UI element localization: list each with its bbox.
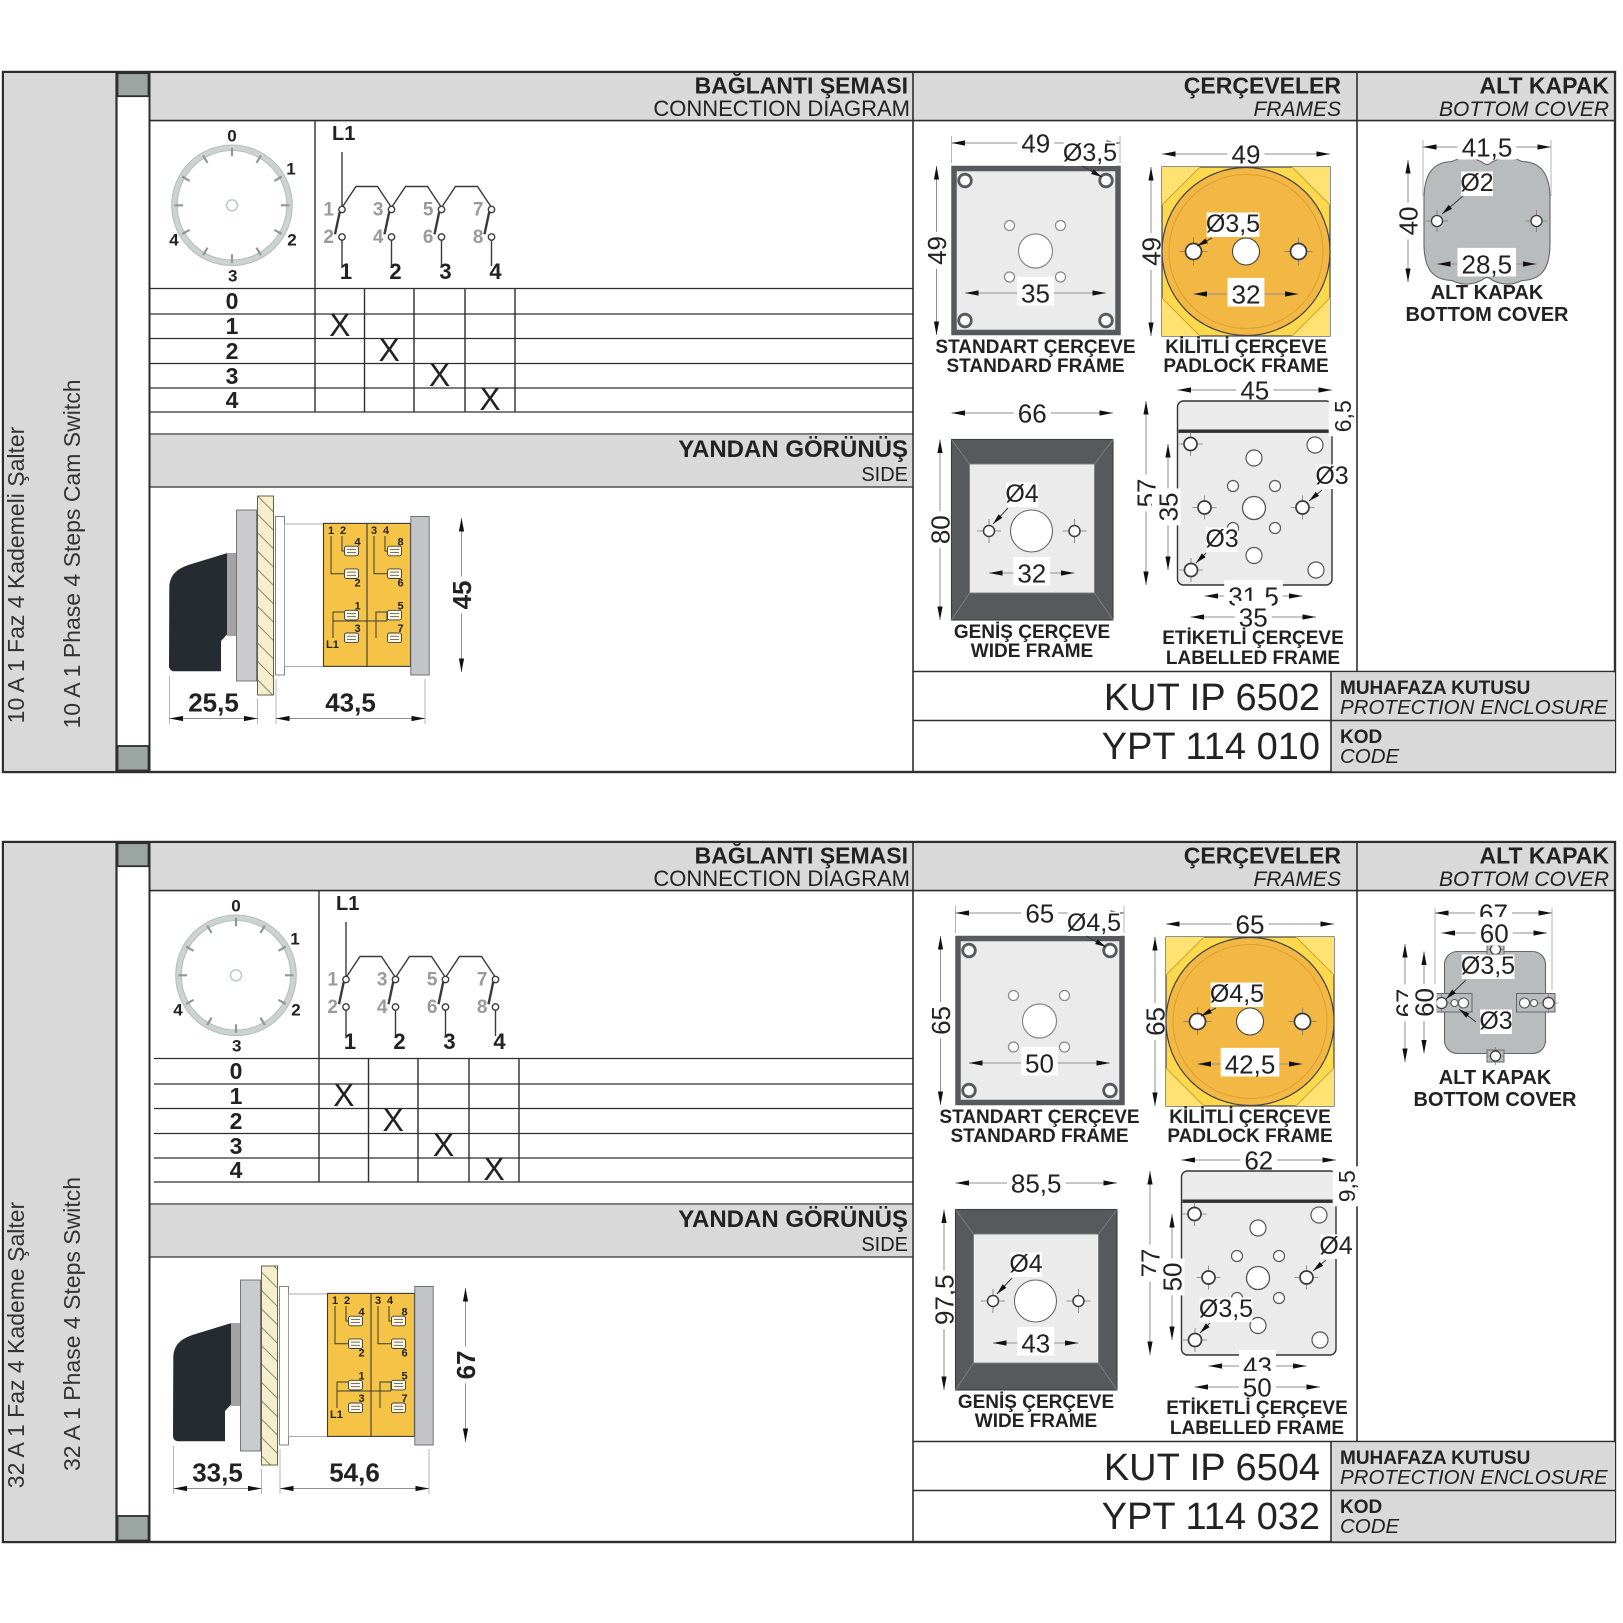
svg-text:Ø4: Ø4: [1005, 480, 1038, 508]
svg-text:3: 3: [358, 1393, 364, 1405]
svg-text:4: 4: [373, 227, 384, 248]
svg-text:6,5: 6,5: [1330, 400, 1356, 432]
svg-text:3: 3: [377, 970, 388, 991]
svg-text:8: 8: [477, 997, 488, 1018]
svg-text:2: 2: [323, 227, 334, 248]
svg-text:1: 1: [286, 159, 295, 178]
svg-text:BOTTOM COVER: BOTTOM COVER: [1406, 304, 1570, 326]
svg-text:LABELLED FRAME: LABELLED FRAME: [1170, 1418, 1344, 1439]
svg-text:KİLİTLİ ÇERÇEVE: KİLİTLİ ÇERÇEVE: [1169, 1107, 1331, 1128]
svg-text:3: 3: [230, 1133, 243, 1159]
svg-text:32 A 1 Faz 4 Kademe Şalter: 32 A 1 Faz 4 Kademe Şalter: [3, 1201, 29, 1488]
svg-text:8: 8: [473, 227, 484, 248]
svg-text:4: 4: [493, 1029, 506, 1054]
svg-text:2: 2: [327, 997, 338, 1018]
svg-text:FRAMES: FRAMES: [1253, 868, 1341, 891]
svg-text:X: X: [429, 357, 450, 393]
svg-text:L1: L1: [332, 123, 355, 145]
svg-text:X: X: [333, 1077, 354, 1113]
svg-text:BOTTOM COVER: BOTTOM COVER: [1439, 98, 1609, 121]
svg-text:X: X: [329, 307, 350, 343]
svg-text:7: 7: [477, 970, 488, 991]
svg-text:32: 32: [1232, 279, 1261, 309]
svg-text:YANDAN GÖRÜNÜŞ: YANDAN GÖRÜNÜŞ: [678, 1206, 908, 1233]
svg-text:5: 5: [397, 601, 403, 613]
svg-text:0: 0: [226, 288, 239, 314]
svg-text:28,5: 28,5: [1461, 249, 1512, 279]
svg-text:PADLOCK FRAME: PADLOCK FRAME: [1163, 356, 1328, 377]
svg-text:L1: L1: [326, 639, 339, 651]
svg-text:KUT IP 6504: KUT IP 6504: [1104, 1447, 1320, 1489]
svg-text:3: 3: [443, 1029, 455, 1054]
svg-text:Ø3,5: Ø3,5: [1063, 139, 1117, 167]
svg-text:3: 3: [226, 363, 239, 389]
svg-text:2: 2: [230, 1108, 243, 1134]
svg-text:1: 1: [354, 601, 360, 613]
svg-text:Ø4,5: Ø4,5: [1210, 980, 1264, 1008]
svg-text:1: 1: [290, 929, 299, 948]
svg-text:CODE: CODE: [1340, 1515, 1400, 1538]
svg-text:KUT IP 6502: KUT IP 6502: [1104, 677, 1320, 719]
svg-text:1: 1: [327, 970, 338, 991]
svg-text:9,5: 9,5: [1334, 1170, 1360, 1202]
svg-text:4: 4: [383, 525, 390, 537]
svg-text:43,5: 43,5: [325, 688, 376, 718]
svg-text:85,5: 85,5: [1011, 1168, 1062, 1198]
svg-text:GENİŞ ÇERÇEVE: GENİŞ ÇERÇEVE: [958, 1392, 1114, 1413]
svg-text:2: 2: [344, 1295, 350, 1307]
svg-text:42,5: 42,5: [1225, 1049, 1276, 1079]
svg-text:STANDART ÇERÇEVE: STANDART ÇERÇEVE: [939, 1107, 1139, 1128]
svg-text:CONNECTION DIAGRAM: CONNECTION DIAGRAM: [653, 96, 910, 121]
svg-text:Ø3: Ø3: [1479, 1007, 1512, 1035]
svg-text:1: 1: [332, 1295, 338, 1307]
svg-text:ETİKETLİ ÇERÇEVE: ETİKETLİ ÇERÇEVE: [1166, 1398, 1348, 1419]
svg-text:X: X: [379, 332, 400, 368]
svg-text:6: 6: [423, 227, 434, 248]
svg-text:6: 6: [401, 1348, 407, 1360]
svg-text:35: 35: [1153, 492, 1183, 521]
svg-text:1: 1: [230, 1083, 243, 1109]
svg-text:CONNECTION DIAGRAM: CONNECTION DIAGRAM: [653, 866, 910, 891]
svg-text:54,6: 54,6: [329, 1458, 380, 1488]
svg-text:Ø4: Ø4: [1009, 1250, 1042, 1278]
svg-text:65: 65: [926, 1006, 956, 1035]
svg-text:ALT KAPAK: ALT KAPAK: [1480, 73, 1610, 99]
svg-text:4: 4: [489, 259, 502, 284]
svg-text:YANDAN GÖRÜNÜŞ: YANDAN GÖRÜNÜŞ: [678, 436, 908, 463]
svg-text:2: 2: [226, 338, 239, 364]
svg-text:PROTECTION ENCLOSURE: PROTECTION ENCLOSURE: [1340, 696, 1608, 719]
svg-text:6: 6: [427, 997, 438, 1018]
svg-text:2: 2: [358, 1348, 364, 1360]
svg-text:SIDE: SIDE: [861, 464, 908, 486]
svg-text:Ø3: Ø3: [1315, 462, 1348, 490]
svg-text:Ø2: Ø2: [1460, 169, 1493, 197]
svg-text:1: 1: [358, 1371, 364, 1383]
svg-text:BAĞLANTI ŞEMASI: BAĞLANTI ŞEMASI: [695, 842, 908, 869]
svg-text:1: 1: [344, 1029, 356, 1054]
svg-text:45: 45: [447, 580, 477, 609]
svg-text:X: X: [479, 381, 500, 417]
svg-text:2: 2: [340, 525, 346, 537]
svg-text:X: X: [483, 1151, 504, 1187]
svg-text:SIDE: SIDE: [861, 1234, 908, 1256]
svg-text:1: 1: [323, 200, 334, 221]
svg-text:65: 65: [1236, 909, 1265, 939]
svg-text:5: 5: [401, 1371, 407, 1383]
svg-text:10 A 1 Faz 4 Kademeli Şalter: 10 A 1 Faz 4 Kademeli Şalter: [3, 426, 29, 723]
svg-text:YPT 114 010: YPT 114 010: [1102, 726, 1320, 768]
svg-text:67: 67: [451, 1350, 481, 1379]
svg-text:43: 43: [1021, 1328, 1050, 1358]
svg-text:10 A 1 Phase 4 Steps Cam Switc: 10 A 1 Phase 4 Steps Cam Switch: [59, 379, 85, 728]
svg-text:ÇERÇEVELER: ÇERÇEVELER: [1184, 73, 1342, 99]
svg-text:X: X: [383, 1102, 404, 1138]
svg-text:0: 0: [231, 896, 240, 915]
svg-text:1: 1: [340, 259, 352, 284]
svg-text:4: 4: [230, 1157, 243, 1183]
svg-text:4: 4: [169, 230, 179, 249]
svg-text:Ø4: Ø4: [1319, 1232, 1352, 1260]
svg-text:WIDE FRAME: WIDE FRAME: [975, 1411, 1097, 1432]
svg-text:ALT KAPAK: ALT KAPAK: [1480, 843, 1610, 869]
svg-text:PROTECTION ENCLOSURE: PROTECTION ENCLOSURE: [1340, 1466, 1608, 1489]
svg-text:L1: L1: [336, 893, 359, 915]
svg-text:Ø3,5: Ø3,5: [1199, 1295, 1253, 1323]
svg-text:3: 3: [373, 200, 384, 221]
svg-text:3: 3: [371, 525, 377, 537]
svg-text:4: 4: [173, 1000, 183, 1019]
svg-text:4: 4: [387, 1295, 394, 1307]
svg-text:L1: L1: [330, 1409, 343, 1421]
svg-text:ÇERÇEVELER: ÇERÇEVELER: [1184, 843, 1342, 869]
svg-text:2: 2: [354, 578, 360, 590]
svg-text:BOTTOM COVER: BOTTOM COVER: [1439, 868, 1609, 891]
svg-text:4: 4: [226, 387, 239, 413]
svg-text:66: 66: [1018, 398, 1047, 428]
svg-text:49: 49: [1232, 139, 1261, 169]
svg-text:50: 50: [1025, 1048, 1054, 1078]
svg-text:Ø3: Ø3: [1205, 525, 1238, 553]
svg-text:Ø3,5: Ø3,5: [1206, 210, 1260, 238]
svg-text:0: 0: [230, 1058, 243, 1084]
svg-text:YPT 114 032: YPT 114 032: [1102, 1496, 1320, 1538]
svg-text:Ø4,5: Ø4,5: [1067, 909, 1121, 937]
svg-text:STANDART ÇERÇEVE: STANDART ÇERÇEVE: [935, 337, 1135, 358]
svg-text:8: 8: [397, 537, 403, 549]
svg-text:60: 60: [1409, 988, 1439, 1017]
svg-text:5: 5: [427, 970, 438, 991]
svg-text:ALT KAPAK: ALT KAPAK: [1431, 282, 1544, 304]
svg-text:ETİKETLİ ÇERÇEVE: ETİKETLİ ÇERÇEVE: [1162, 628, 1344, 649]
svg-text:80: 80: [925, 515, 955, 544]
svg-text:4: 4: [354, 537, 361, 549]
svg-text:40: 40: [1393, 206, 1423, 235]
svg-text:2: 2: [291, 1000, 300, 1019]
svg-text:2: 2: [393, 1029, 405, 1054]
svg-text:2: 2: [389, 259, 401, 284]
svg-text:49: 49: [922, 236, 952, 265]
svg-text:7: 7: [473, 200, 484, 221]
svg-text:3: 3: [354, 623, 360, 635]
svg-text:3: 3: [375, 1295, 381, 1307]
svg-text:BAĞLANTI ŞEMASI: BAĞLANTI ŞEMASI: [695, 72, 908, 99]
svg-text:8: 8: [401, 1307, 407, 1319]
svg-text:7: 7: [397, 623, 403, 635]
svg-text:STANDARD FRAME: STANDARD FRAME: [950, 1126, 1128, 1147]
svg-text:50: 50: [1157, 1262, 1187, 1291]
svg-text:25,5: 25,5: [188, 688, 239, 718]
svg-text:60: 60: [1480, 918, 1509, 948]
svg-text:GENİŞ ÇERÇEVE: GENİŞ ÇERÇEVE: [954, 622, 1110, 643]
svg-text:97,5: 97,5: [929, 1274, 959, 1325]
svg-text:32 A 1 Phase 4 Steps Switch: 32 A 1 Phase 4 Steps Switch: [59, 1177, 85, 1471]
svg-text:65: 65: [1025, 898, 1054, 928]
svg-text:X: X: [433, 1127, 454, 1163]
svg-text:0: 0: [227, 126, 236, 145]
svg-text:FRAMES: FRAMES: [1253, 98, 1341, 121]
svg-text:33,5: 33,5: [192, 1458, 243, 1488]
svg-text:7: 7: [401, 1393, 407, 1405]
svg-text:1: 1: [328, 525, 334, 537]
svg-text:BOTTOM COVER: BOTTOM COVER: [1414, 1089, 1578, 1111]
svg-text:35: 35: [1021, 278, 1050, 308]
svg-text:6: 6: [397, 578, 403, 590]
svg-text:WIDE FRAME: WIDE FRAME: [971, 641, 1093, 662]
svg-text:3: 3: [439, 259, 451, 284]
svg-text:3: 3: [228, 266, 237, 285]
svg-text:1: 1: [226, 313, 239, 339]
svg-text:32: 32: [1017, 558, 1046, 588]
svg-text:ALT KAPAK: ALT KAPAK: [1439, 1067, 1552, 1089]
svg-text:STANDARD FRAME: STANDARD FRAME: [946, 356, 1124, 377]
svg-text:CODE: CODE: [1340, 745, 1400, 768]
svg-text:49: 49: [1021, 128, 1050, 158]
svg-text:5: 5: [423, 200, 434, 221]
svg-text:4: 4: [358, 1307, 365, 1319]
svg-text:3: 3: [232, 1036, 241, 1055]
svg-text:LABELLED FRAME: LABELLED FRAME: [1166, 648, 1340, 669]
svg-text:4: 4: [377, 997, 388, 1018]
svg-text:PADLOCK FRAME: PADLOCK FRAME: [1167, 1126, 1332, 1147]
svg-text:2: 2: [287, 230, 296, 249]
svg-text:41,5: 41,5: [1462, 132, 1513, 162]
svg-text:Ø3,5: Ø3,5: [1461, 952, 1515, 980]
svg-text:KİLİTLİ ÇERÇEVE: KİLİTLİ ÇERÇEVE: [1165, 337, 1327, 358]
